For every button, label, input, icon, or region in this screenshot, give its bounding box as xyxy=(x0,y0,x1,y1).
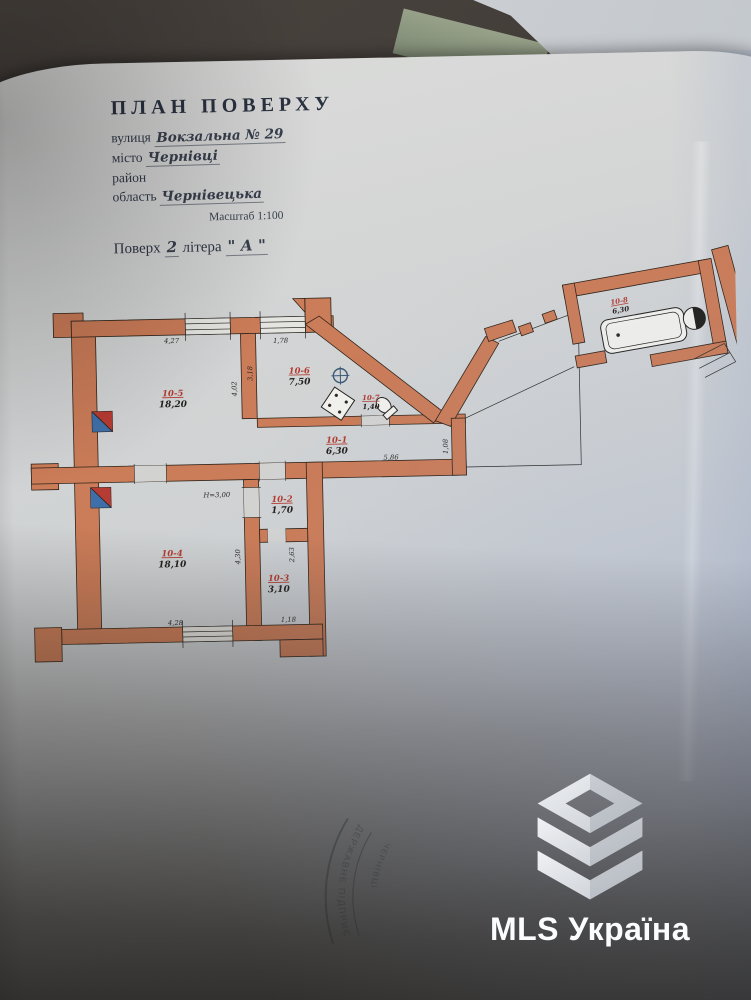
room-number: 10-1 xyxy=(326,435,347,445)
dimension-label: 4,30 xyxy=(234,548,242,565)
room-area: 7,50 xyxy=(288,377,311,387)
vent-channel-icon xyxy=(91,487,111,507)
walls xyxy=(28,293,564,662)
street-value: Вокзальна № 29 xyxy=(154,126,286,147)
region-label: область xyxy=(112,188,156,204)
room-area: 1,40 xyxy=(362,402,379,411)
room-area: 18,10 xyxy=(158,560,187,571)
street-label: вулиця xyxy=(111,130,151,146)
mls-watermark: MLS Україна xyxy=(440,772,740,948)
dimension-label: 4,27 xyxy=(163,337,180,345)
bathroom-wing: 10-8 6,30 xyxy=(562,257,737,399)
room-area: 6,30 xyxy=(611,304,630,316)
room-number: 10-4 xyxy=(161,549,183,559)
dimension-label: 4,28 xyxy=(167,619,184,627)
room-number: 10-2 xyxy=(271,495,293,505)
vent-channel-icon xyxy=(92,411,112,431)
region-value: Чернівецька xyxy=(160,186,265,206)
gas-meter-icon xyxy=(331,366,349,384)
district-label: район xyxy=(112,170,146,186)
room-area: 18,20 xyxy=(159,400,188,411)
room-number: 10-3 xyxy=(268,574,290,584)
dimension-label: 1,18 xyxy=(281,616,297,624)
mls-logo-icon xyxy=(520,772,660,903)
city-value: Чернівці xyxy=(146,148,221,167)
dimension-label: 3,18 xyxy=(246,365,254,381)
floor-plan-drawing: 10-8 6,30 10-5 18,20 10-6 7,50 10-7 1,40… xyxy=(19,215,743,680)
city-label: місто xyxy=(112,150,143,166)
region-line: область Чернівецька xyxy=(112,182,472,207)
room-area: 6,30 xyxy=(326,446,349,456)
dimension-label: 2,63 xyxy=(288,547,296,563)
ceiling-height-label: H=3,00 xyxy=(202,491,231,500)
dimension-label: 1,08 xyxy=(442,438,450,454)
dimension-label: 4,02 xyxy=(230,381,238,397)
room-number: 10-5 xyxy=(162,389,184,399)
stamp-inner-text: ЧЕРНІВЦІ xyxy=(369,840,393,891)
dimension-label: 1,78 xyxy=(273,337,289,345)
brand-name: MLS Україна xyxy=(440,911,740,948)
photo-scene: ПЛАН ПОВЕРХУ вулиця Вокзальна № 29 місто… xyxy=(0,0,751,1000)
room-area: 1,70 xyxy=(271,506,294,516)
room-number: 10-6 xyxy=(289,366,311,376)
stove-icon xyxy=(321,387,354,420)
room-area: 3,10 xyxy=(268,585,291,595)
dimension-label: 5,86 xyxy=(383,453,399,461)
room-number: 10-7 xyxy=(362,393,380,402)
